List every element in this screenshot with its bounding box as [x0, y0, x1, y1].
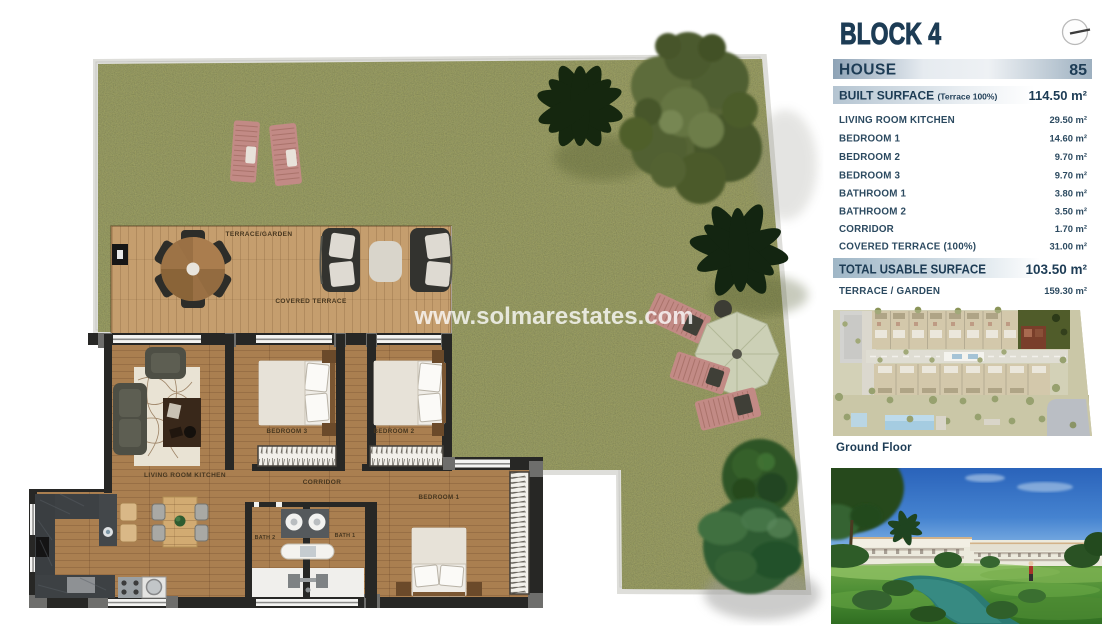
- svg-text:TERRACE / GARDEN: TERRACE / GARDEN: [839, 286, 940, 297]
- svg-text:BLOCK 4: BLOCK 4: [840, 16, 942, 51]
- svg-text:BEDROOM 3: BEDROOM 3: [839, 171, 900, 182]
- svg-text:85: 85: [1069, 62, 1087, 79]
- svg-text:BEDROOM 3: BEDROOM 3: [266, 428, 307, 435]
- svg-text:14.60 m²: 14.60 m²: [1049, 133, 1087, 144]
- svg-text:159.30 m²: 159.30 m²: [1044, 285, 1087, 296]
- svg-text:Ground Floor: Ground Floor: [836, 442, 912, 454]
- svg-text:BATH 1: BATH 1: [335, 533, 356, 539]
- svg-text:BATHROOM 1: BATHROOM 1: [839, 189, 906, 200]
- svg-text:31.00 m²: 31.00 m²: [1049, 241, 1087, 252]
- svg-text:CORRIDOR: CORRIDOR: [839, 224, 894, 235]
- svg-text:BATHROOM 2: BATHROOM 2: [839, 207, 906, 218]
- svg-text:BEDROOM 2: BEDROOM 2: [839, 152, 900, 163]
- svg-text:BEDROOM 1: BEDROOM 1: [418, 494, 459, 501]
- svg-text:HOUSE: HOUSE: [839, 62, 897, 79]
- svg-text:29.50 m²: 29.50 m²: [1049, 114, 1087, 125]
- svg-text:3.80 m²: 3.80 m²: [1055, 188, 1087, 199]
- svg-text:COVERED TERRACE: COVERED TERRACE: [275, 298, 347, 305]
- svg-text:TERRACE/GARDEN: TERRACE/GARDEN: [226, 231, 293, 238]
- svg-text:CORRIDOR: CORRIDOR: [303, 479, 342, 486]
- svg-text:BUILT SURFACE (Terrace 100%): BUILT SURFACE (Terrace 100%): [839, 89, 997, 103]
- svg-text:103.50 m²: 103.50 m²: [1025, 262, 1087, 277]
- svg-text:3.50 m²: 3.50 m²: [1055, 206, 1087, 217]
- svg-text:9.70 m²: 9.70 m²: [1055, 170, 1087, 181]
- svg-text:TOTAL USABLE SURFACE: TOTAL USABLE SURFACE: [839, 262, 986, 277]
- svg-text:BEDROOM 1: BEDROOM 1: [839, 134, 900, 145]
- svg-text:BEDROOM 2: BEDROOM 2: [373, 428, 414, 435]
- svg-text:LIVING ROOM KITCHEN: LIVING ROOM KITCHEN: [144, 472, 226, 479]
- svg-text:1.70 m²: 1.70 m²: [1055, 223, 1087, 234]
- svg-text:COVERED TERRACE (100%): COVERED TERRACE (100%): [839, 242, 976, 253]
- svg-text:9.70 m²: 9.70 m²: [1055, 151, 1087, 162]
- svg-text:BATH 2: BATH 2: [255, 535, 276, 541]
- svg-text:LIVING ROOM KITCHEN: LIVING ROOM KITCHEN: [839, 115, 955, 126]
- svg-text:www.solmarestates.com: www.solmarestates.com: [413, 303, 693, 330]
- svg-text:114.50 m²: 114.50 m²: [1028, 88, 1087, 103]
